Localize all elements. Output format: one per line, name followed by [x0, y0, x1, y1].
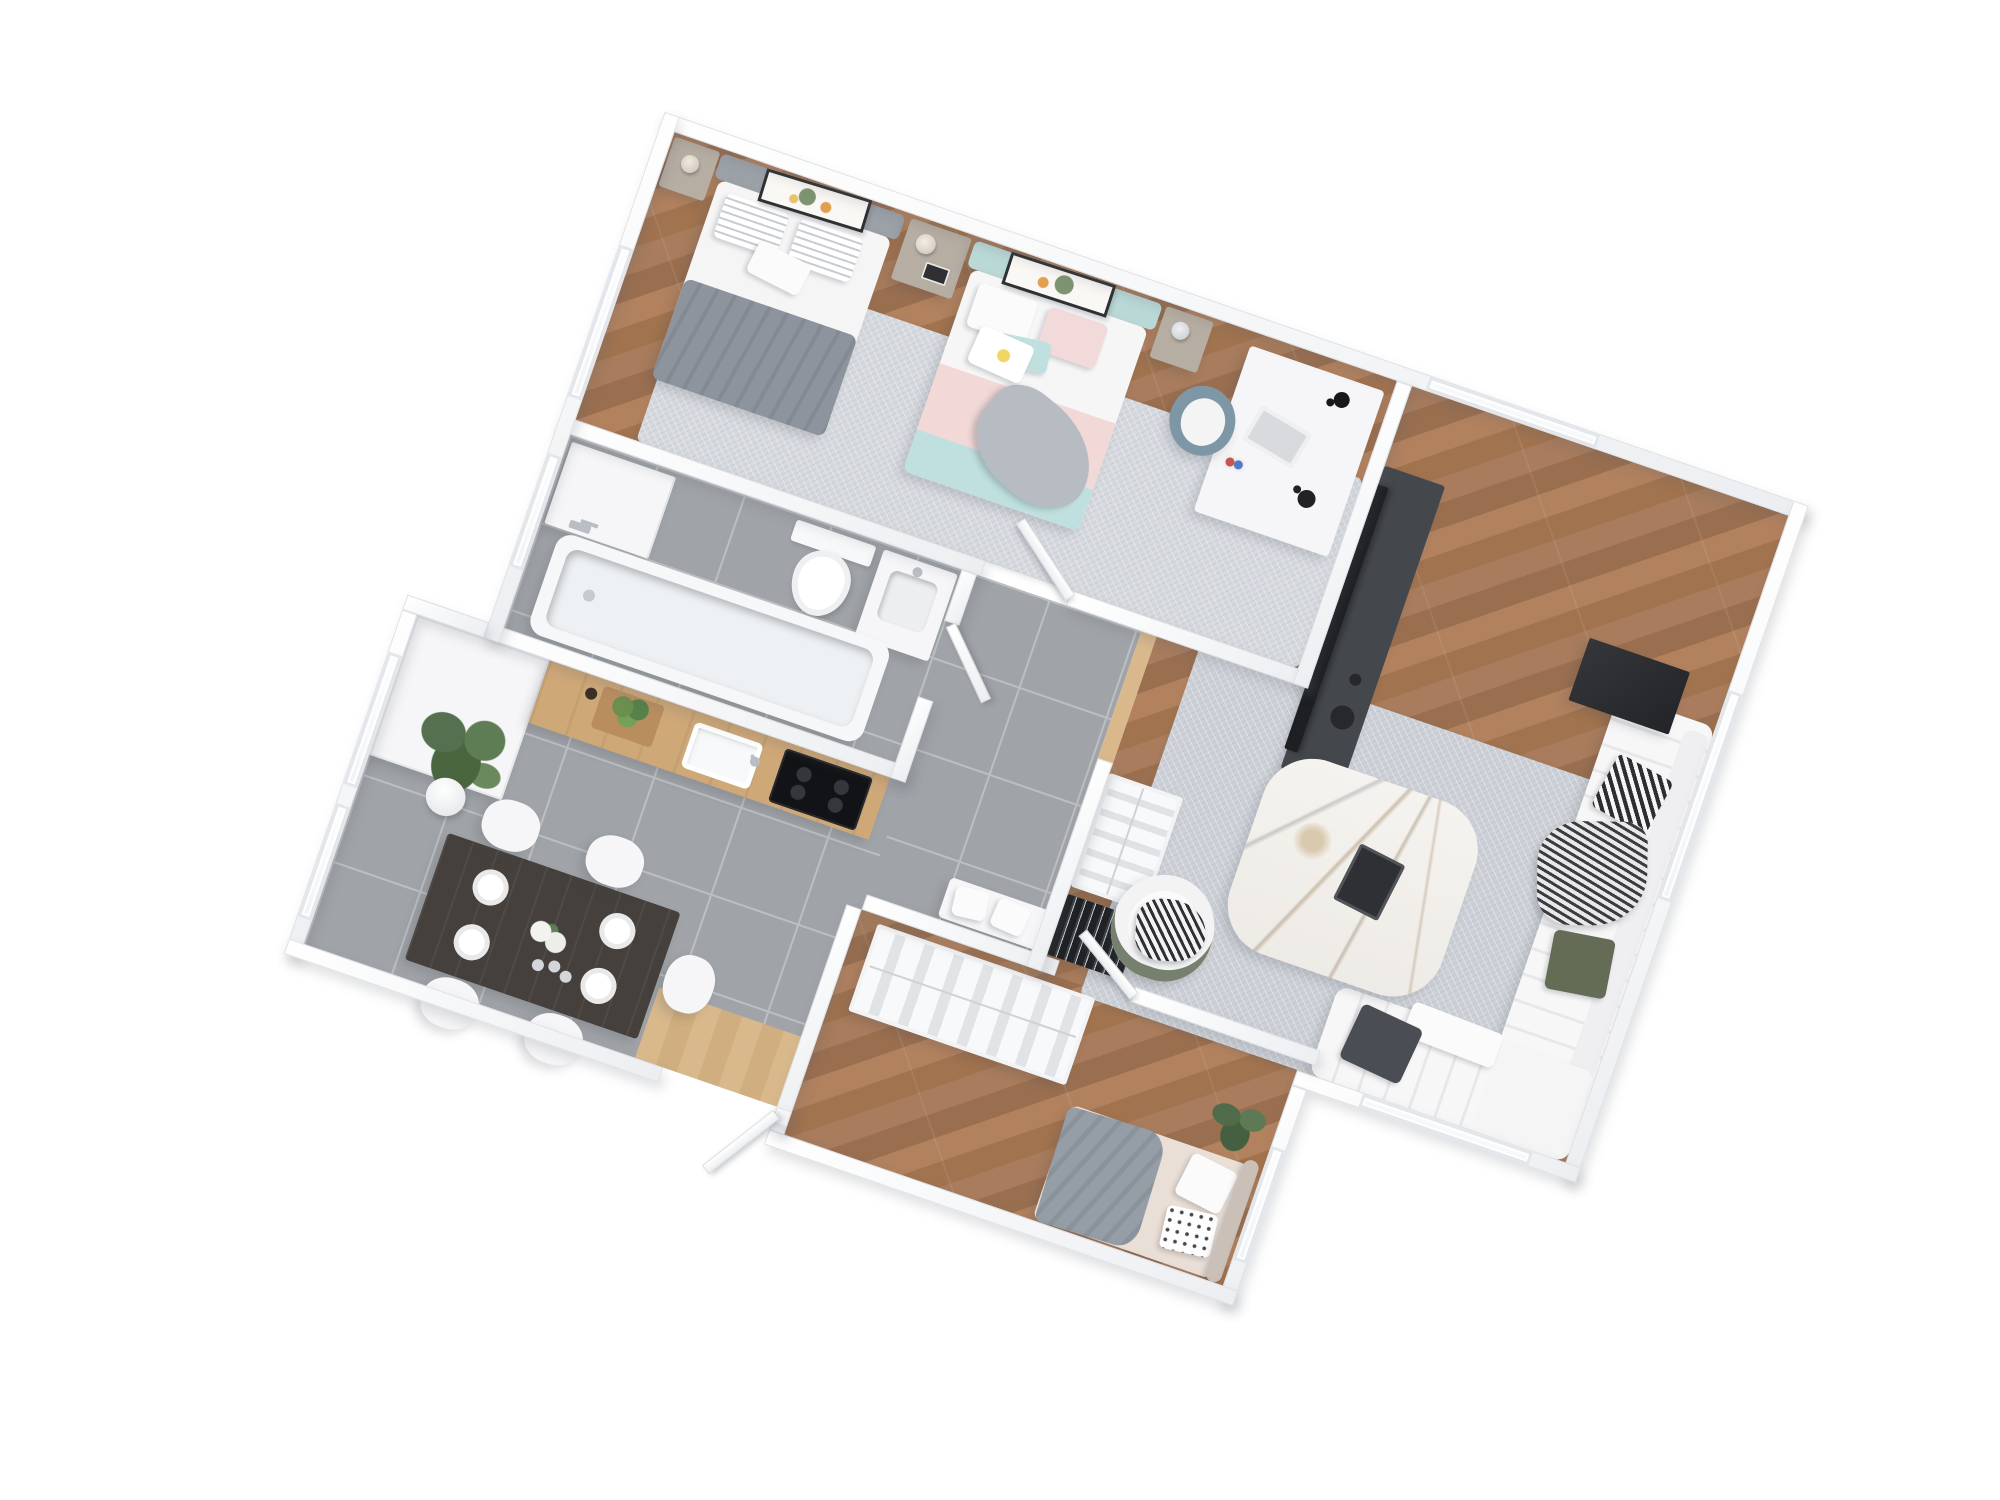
floor-plan-render	[191, 57, 1808, 1414]
screenshot-canvas	[0, 0, 2000, 1500]
cushion-olive	[1544, 929, 1616, 1000]
